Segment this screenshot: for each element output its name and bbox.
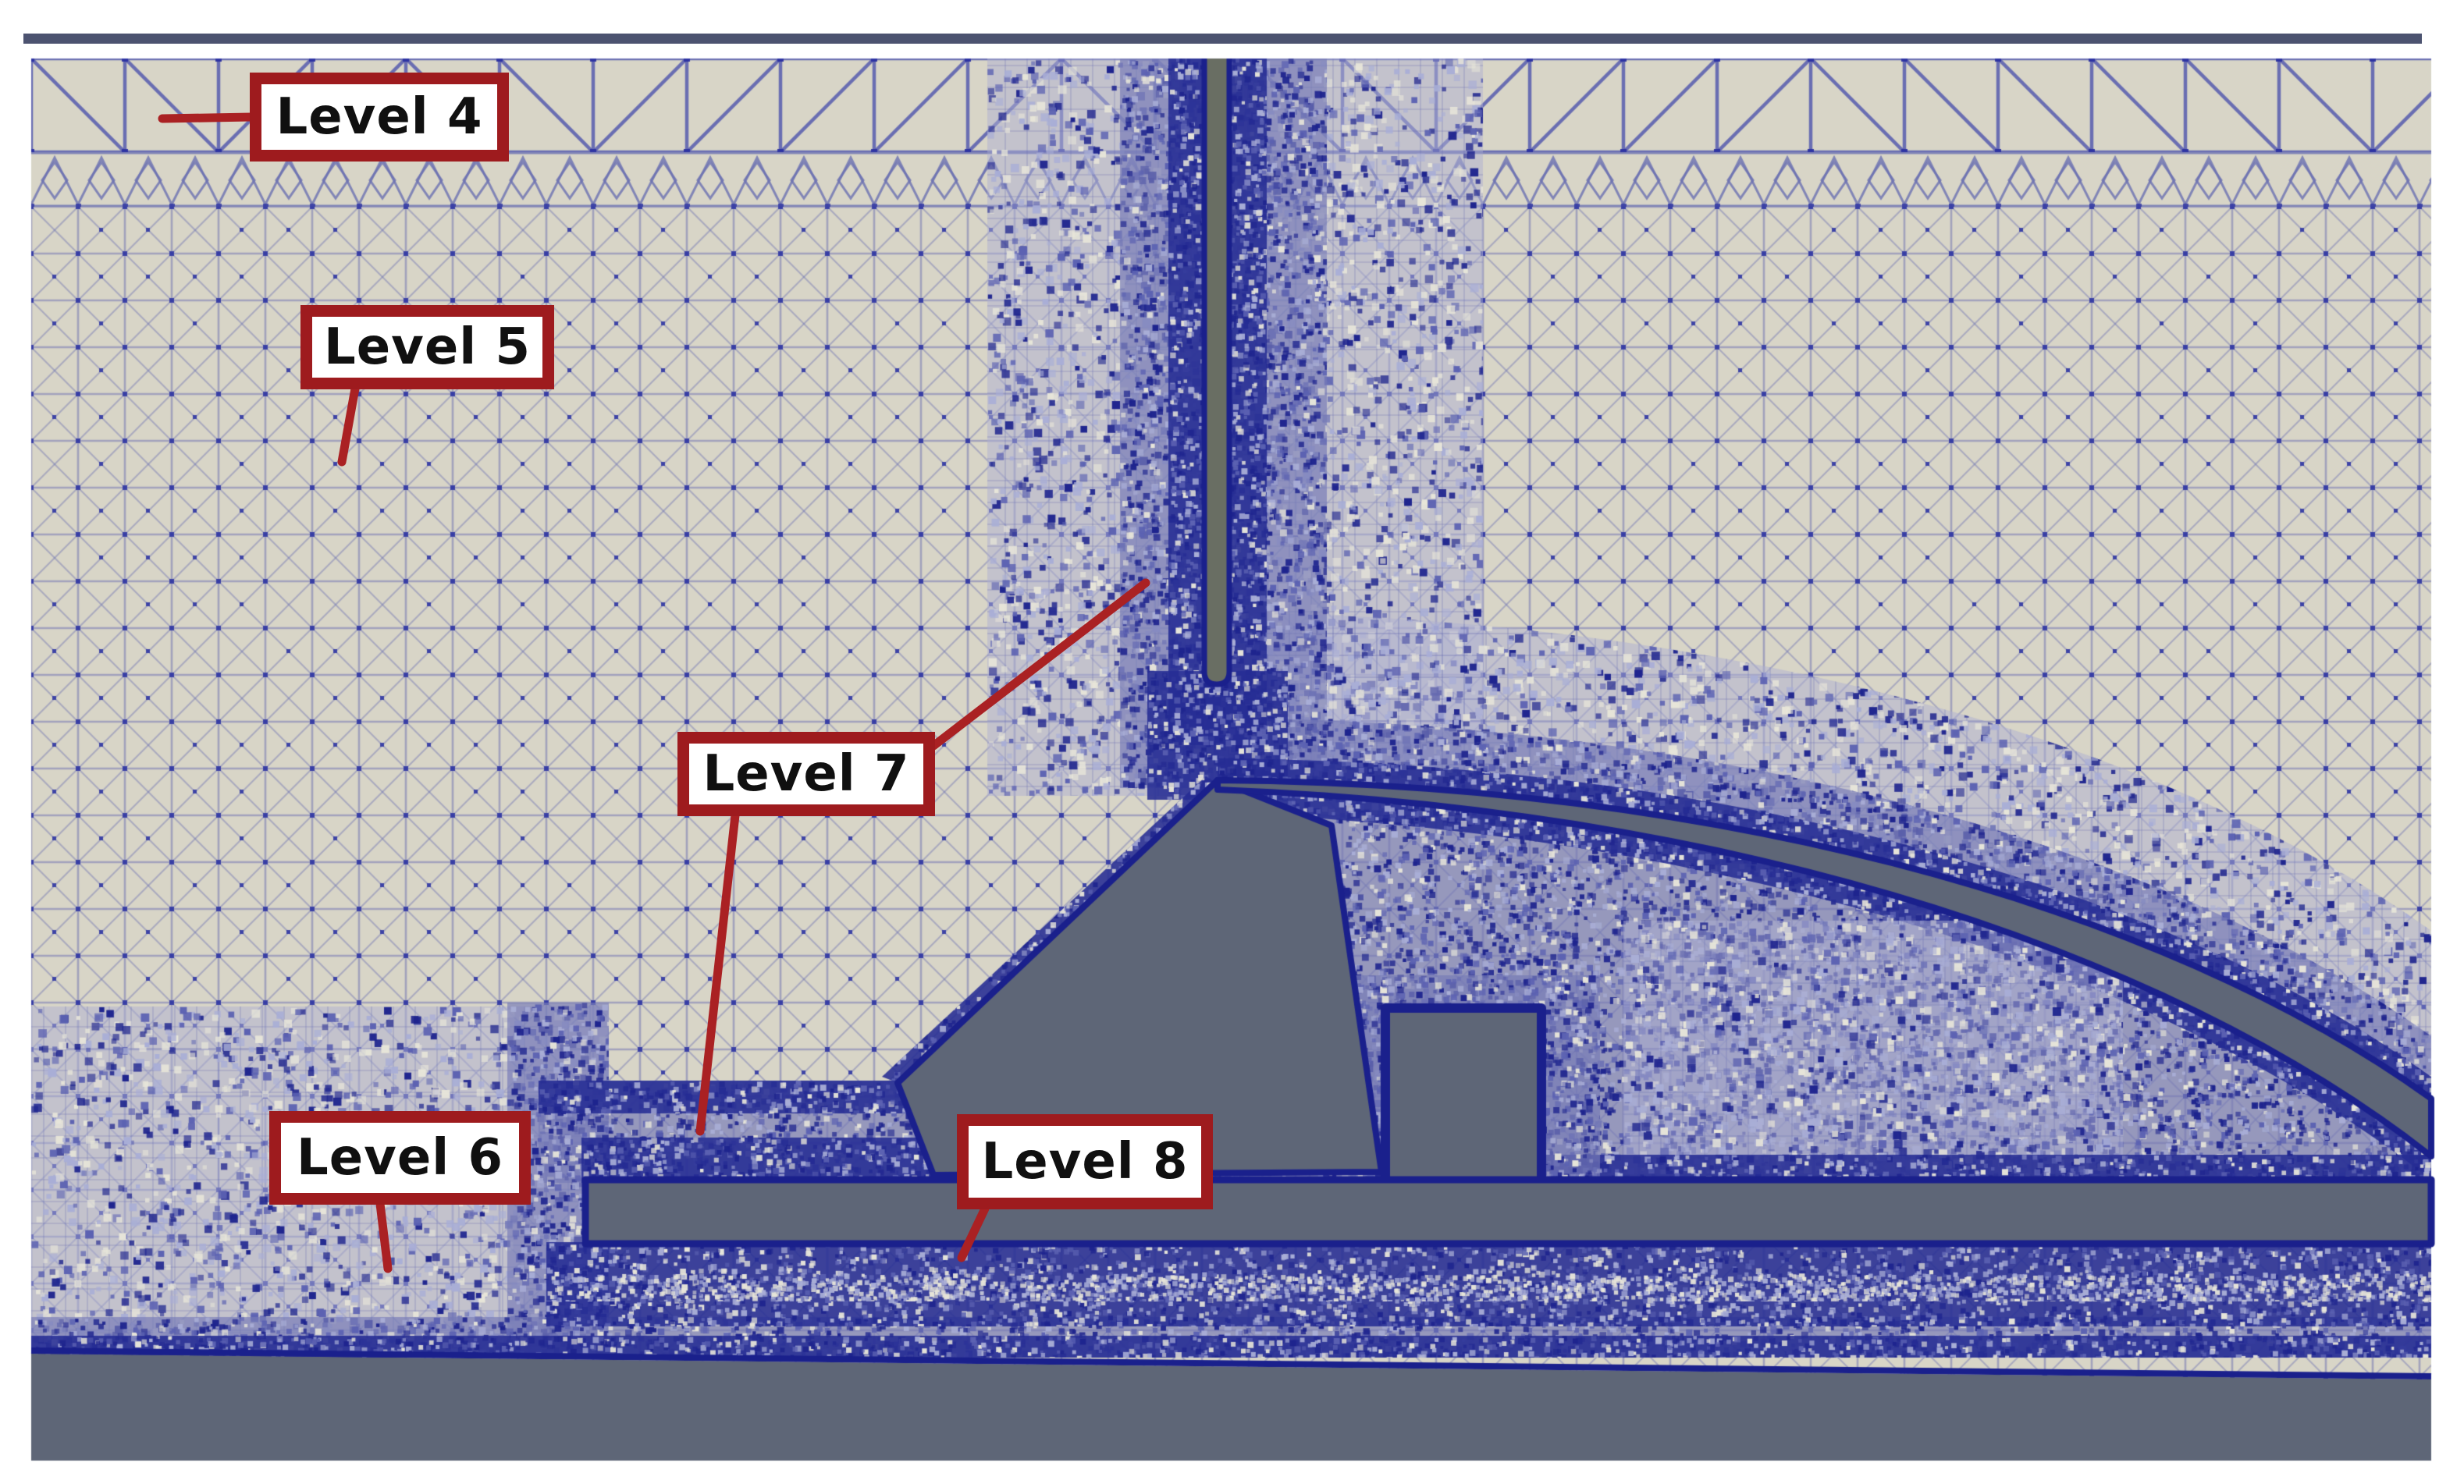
label-level-4: Level 4 — [250, 73, 509, 162]
mesh-canvas — [0, 0, 2464, 1484]
label-level-7: Level 7 — [677, 732, 935, 816]
label-level-8: Level 8 — [957, 1114, 1213, 1209]
label-level-5: Level 5 — [300, 305, 554, 389]
label-level-6: Level 6 — [269, 1111, 531, 1205]
mesh-refinement-figure: Level 4 Level 5 Level 7 Level 6 Level 8 — [0, 0, 2464, 1484]
top-rule — [23, 34, 2422, 44]
